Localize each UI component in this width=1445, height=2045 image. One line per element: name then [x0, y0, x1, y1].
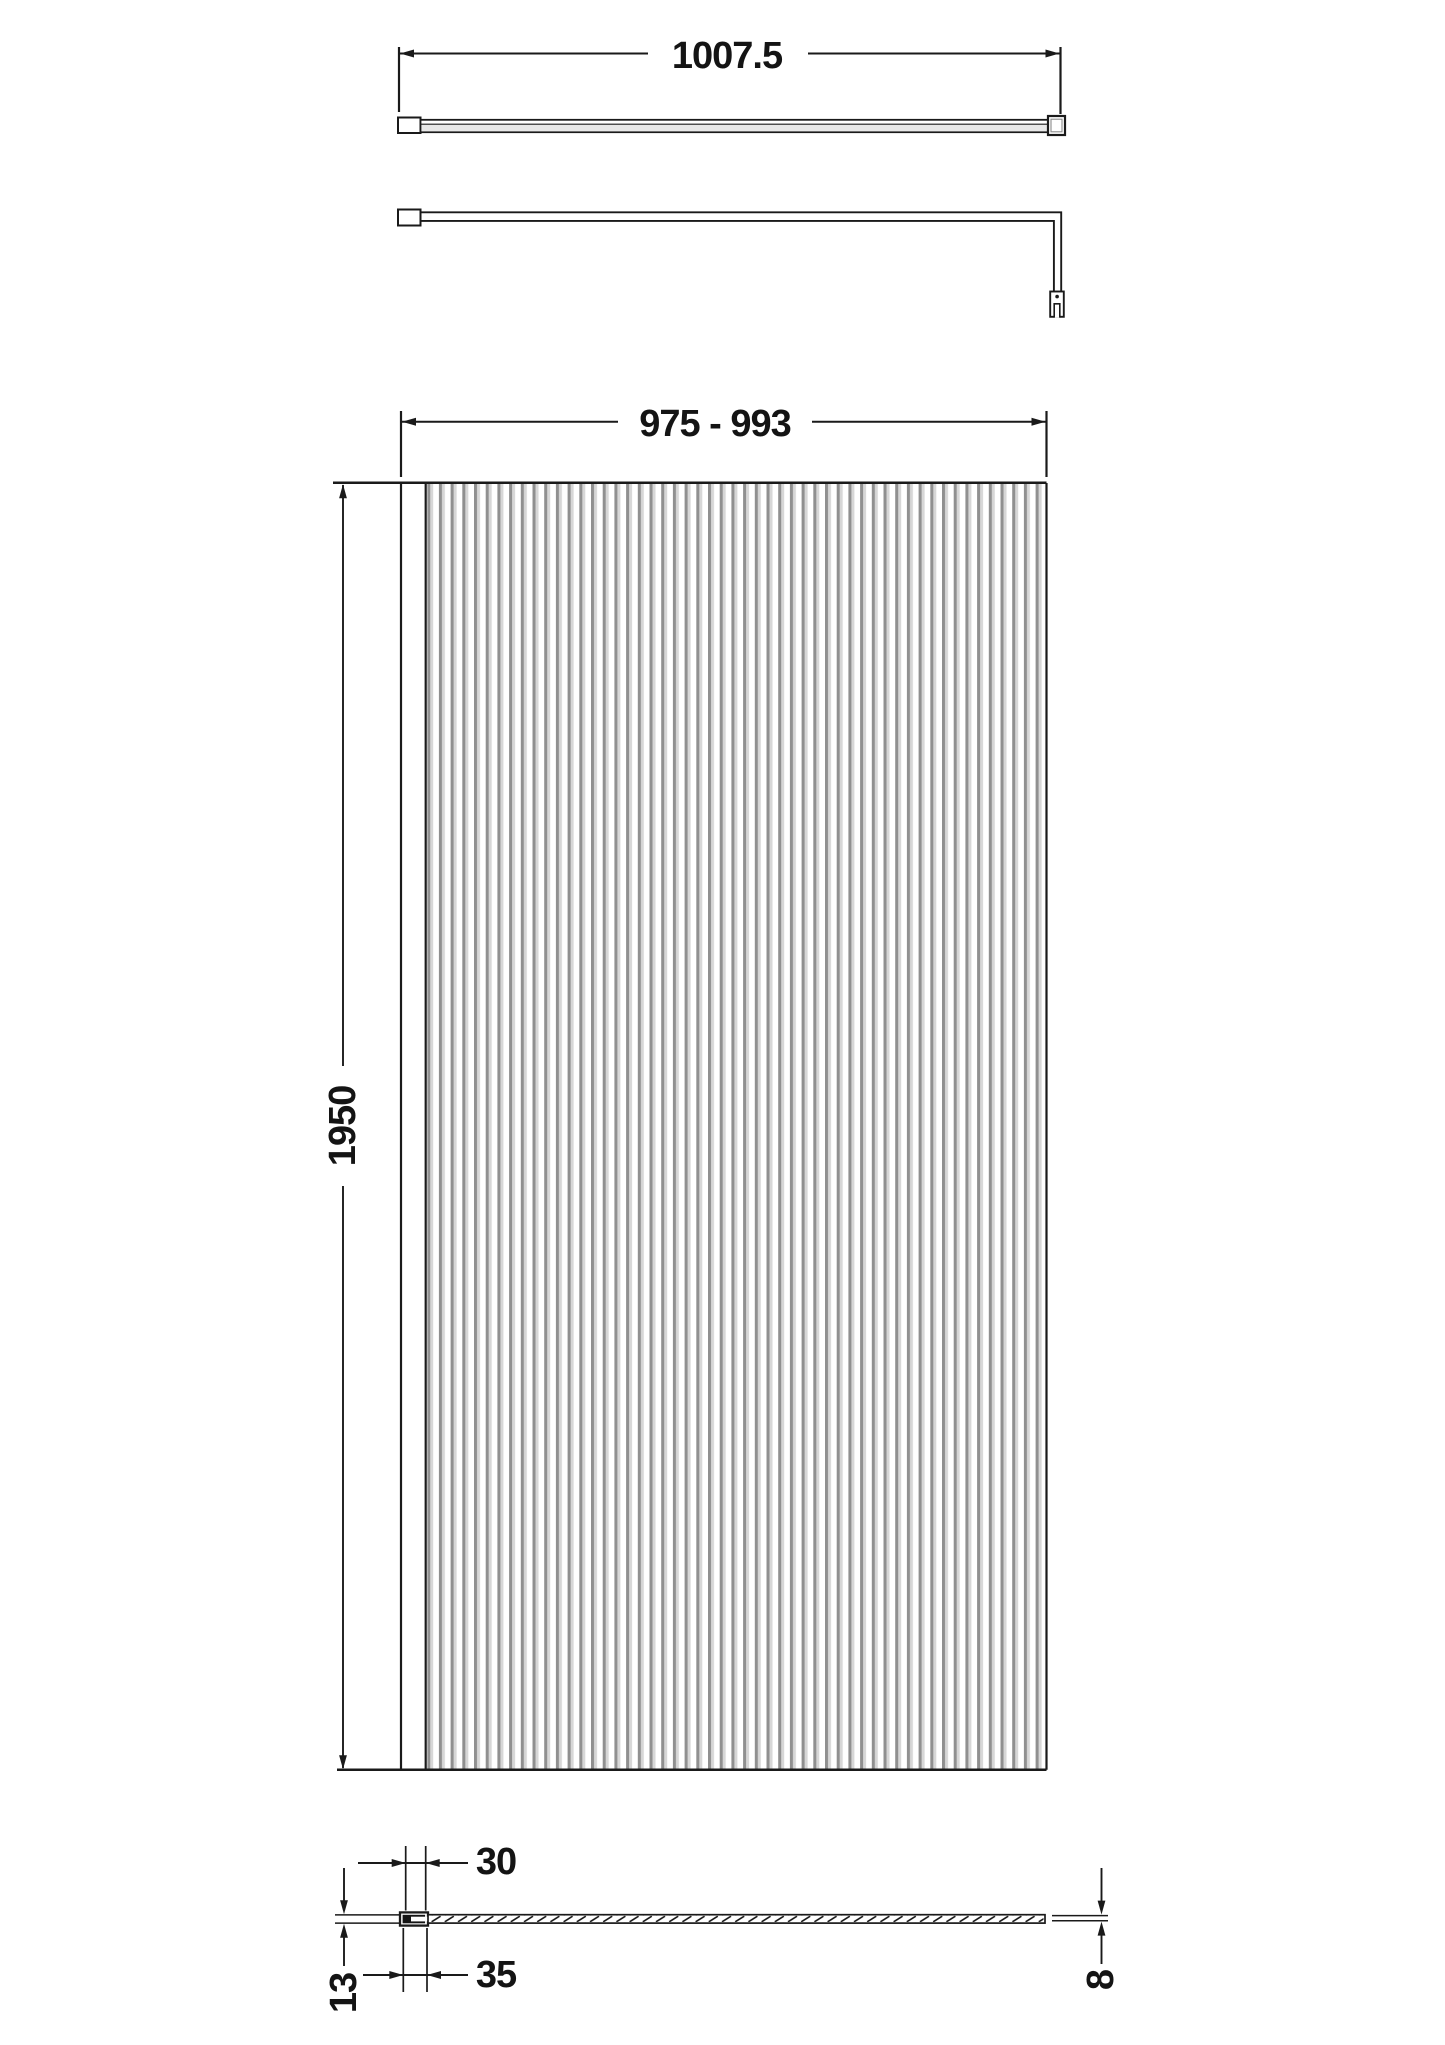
- section-dimension-35: [358, 1928, 468, 1992]
- plan-support-bar: [421, 120, 1049, 132]
- dim-label-profile-35: 35: [471, 1956, 521, 1994]
- section-dimension-13: [335, 1868, 400, 1966]
- section-wall-profile: [400, 1912, 428, 1925]
- fluted-glass: [427, 484, 1045, 1769]
- section-dimension-30: [358, 1846, 468, 1911]
- dim-label-profile-13: 13: [325, 1968, 363, 2018]
- side-view: [398, 210, 1064, 318]
- plan-glass-clamp: [1048, 116, 1065, 135]
- dim-label-profile-30: 30: [471, 1843, 521, 1881]
- side-wall-bracket: [398, 210, 421, 226]
- dim-label-panel-height: 1950: [324, 1081, 362, 1172]
- drawing-linework: [0, 0, 1445, 2045]
- dim-label-glass-8: 8: [1082, 1965, 1120, 1995]
- section-glass-strip: [428, 1915, 1045, 1923]
- front-elevation: [333, 411, 1047, 1770]
- side-support-bar: [421, 212, 1062, 291]
- plan-wall-bracket: [398, 118, 421, 134]
- section-dimension-8: [1052, 1868, 1108, 1964]
- technical-drawing-canvas: 1007.5 975 - 993 1950 30 35 13 8: [0, 0, 1445, 2045]
- dim-label-bar-length: 1007.5: [667, 37, 787, 75]
- bottom-section-view: [335, 1846, 1108, 1992]
- side-glass-clamp: [1050, 292, 1064, 318]
- dim-label-panel-width: 975 - 993: [634, 405, 796, 443]
- clamp-screw-dot: [1055, 295, 1059, 299]
